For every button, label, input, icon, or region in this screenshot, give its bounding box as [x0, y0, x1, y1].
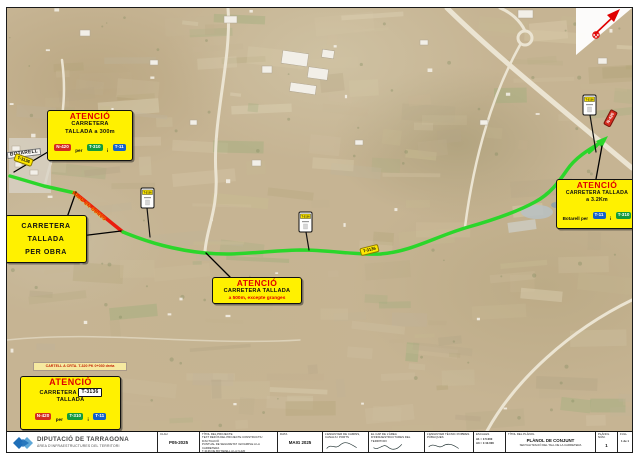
- svg-text:T-3136: T-3136: [585, 98, 594, 102]
- road-badge-t310: T-310: [616, 212, 632, 219]
- callout-t3136-closed: ATENCIÓ CARRETERA T-3136 TALLADA N-420 p…: [20, 376, 121, 430]
- signature-cell-technician: L'ENGINYER TÈCNIC D'OBRES PÚBLIQUES: [424, 432, 473, 452]
- plan-title-cell: TÍTOL DEL PLÀNOL PLÀNOL DE CONJUNT SENYA…: [505, 432, 595, 452]
- svg-text:T-3136: T-3136: [301, 215, 310, 219]
- attention-title: ATENCIÓ: [24, 378, 117, 388]
- attention-title: ATENCIÓ: [51, 112, 129, 121]
- plan-number-cell: PLÀNOL NÚM. 1: [595, 432, 617, 452]
- organization-cell: DIPUTACIÓ DE TARRAGONA ÀREA D'INFRAESTRU…: [7, 432, 157, 452]
- attention-title: ATENCIÓ: [216, 279, 298, 288]
- km-marker-sign: T-3136: [583, 95, 596, 115]
- sheet-number: 1 de 1: [620, 440, 630, 443]
- km-marker-sign: T-3136: [141, 188, 154, 208]
- signature-icon: [371, 441, 404, 451]
- svg-text:T-3136: T-3136: [143, 191, 152, 195]
- sheet-frame: T-3136 T-3136: [6, 7, 633, 453]
- road-badge-t310: T-310: [67, 413, 83, 420]
- scales-cell: ESCALES A1 = 1:5.000 A3 = 1:10.000: [473, 432, 505, 452]
- callout-line: CARRETERA: [51, 121, 129, 128]
- scale-a3: A3 = 1:10.000: [476, 442, 503, 445]
- detour-roads-line: Botarell per T-11 i T-310: [560, 204, 632, 227]
- signature-cell-area-head: EL CAP DE L'ÀREA D'INFRAESTRUCTURES DEL …: [368, 432, 424, 452]
- callout-closed-500m: ATENCIÓ CARRETERA TALLADA a 500m, except…: [212, 277, 302, 304]
- road-badge-n420: N-420: [35, 413, 52, 420]
- diputacio-logo: [12, 435, 34, 450]
- date-cell: DATA MAIG 2025: [277, 432, 322, 452]
- km-marker-sign: T-3136: [299, 212, 312, 232]
- key-cell: CLAU P05-2025: [157, 432, 199, 452]
- plan-subtitle: SENYALITZACIÓ DEL TALL DE LA CARRETERA: [508, 444, 593, 447]
- signature-icon: [325, 441, 358, 451]
- sheet-cell: FULL 1 de 1: [617, 432, 632, 452]
- road-badge-t310: T-310: [87, 144, 103, 151]
- callout-closed-300m: ATENCIÓ CARRETERA TALLADA a 300m N-420 p…: [47, 110, 133, 161]
- road-badge-n420: N-420: [54, 144, 71, 151]
- signature-cell-engineer: L'ENGINYER DE CAMINS, CANALS I PORTS: [322, 432, 368, 452]
- road-badge-t3136: T-3136: [78, 388, 101, 398]
- detour-roads-line: N-420 per T-310 i T-11: [51, 136, 129, 159]
- org-subname: ÀREA D'INFRAESTRUCTURES DEL TERRITORI: [37, 444, 129, 448]
- callout-line: TALLADA a 300m: [51, 129, 129, 136]
- callout-closed-3-2km: ATENCIÓ CARRETERA TALLADA a 3.2Km Botare…: [556, 179, 632, 229]
- attention-title: ATENCIÓ: [560, 181, 632, 190]
- project-title-cell: TÍTOL DEL PROJECTE TEXT REFÓS DEL PROJEC…: [199, 432, 277, 452]
- org-name: DIPUTACIÓ DE TARRAGONA: [37, 436, 129, 443]
- plan-sheet: T-3136 T-3136: [0, 0, 640, 457]
- sign-location-note: CARTELL A CRTA. T-320 PK 0+030 dreta: [33, 362, 127, 371]
- plan-date: MAIG 2025: [280, 440, 320, 445]
- callout-line: CARRETERA T-3136: [24, 388, 117, 398]
- callout-closed-for-works: CARRETERA TALLADA PER OBRA: [7, 215, 87, 263]
- road-badge-t11: T-11: [113, 144, 126, 151]
- title-block: DIPUTACIÓ DE TARRAGONA ÀREA D'INFRAESTRU…: [7, 431, 632, 452]
- detour-roads-line: N-420 per T-310 i T-11: [24, 405, 117, 428]
- road-badge-t11: T-11: [593, 212, 606, 219]
- signature-icon: [427, 441, 460, 451]
- map-area: T-3136 T-3136: [7, 8, 632, 431]
- plan-number: 1: [598, 443, 615, 448]
- road-badge-t11: T-11: [93, 413, 106, 420]
- project-key: P05-2025: [160, 440, 197, 445]
